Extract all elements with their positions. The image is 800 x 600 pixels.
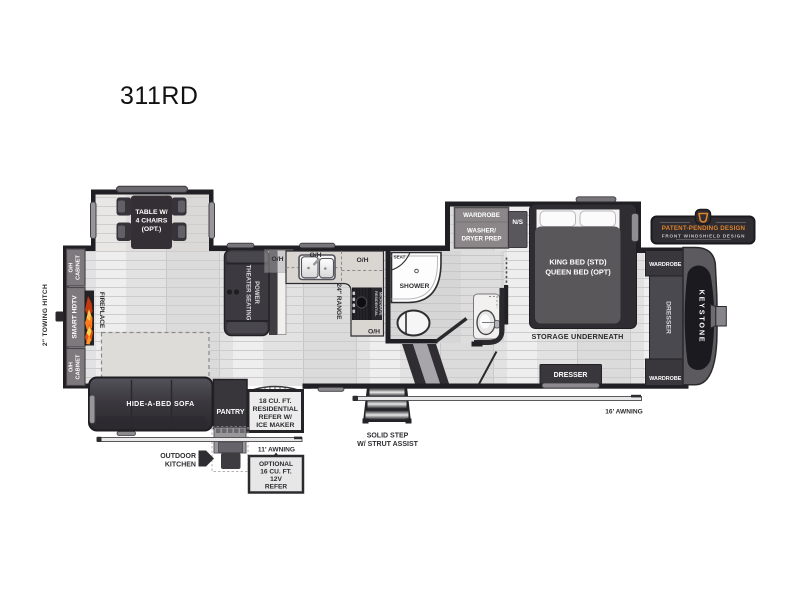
- svg-text:18 CU. FT.: 18 CU. FT.: [259, 398, 292, 405]
- svg-text:SHOWER: SHOWER: [400, 283, 430, 290]
- svg-text:24″ RANGE: 24″ RANGE: [335, 283, 342, 320]
- svg-text:11’ AWNING: 11’ AWNING: [258, 447, 295, 454]
- svg-text:SMART HDTV: SMART HDTV: [72, 295, 79, 339]
- svg-text:ICE MAKER: ICE MAKER: [256, 422, 294, 429]
- svg-text:OUTDOOR: OUTDOOR: [160, 453, 196, 460]
- svg-text:QUEEN BED (OPT): QUEEN BED (OPT): [545, 268, 611, 277]
- svg-text:4 CHAIRS: 4 CHAIRS: [136, 218, 168, 225]
- svg-text:N/S: N/S: [512, 219, 523, 226]
- svg-text:(OPT.): (OPT.): [142, 226, 162, 233]
- svg-text:DRESSER: DRESSER: [665, 301, 672, 334]
- svg-text:THEATER SEATING: THEATER SEATING: [245, 265, 251, 321]
- svg-text:CABINET: CABINET: [76, 354, 82, 379]
- svg-text:REFER: REFER: [265, 484, 288, 491]
- svg-text:WARDROBE: WARDROBE: [649, 376, 681, 382]
- svg-text:RESIDENTIAL: RESIDENTIAL: [374, 291, 378, 317]
- svg-text:RESIDENTIAL: RESIDENTIAL: [253, 406, 298, 413]
- svg-text:SOLID STEP: SOLID STEP: [367, 433, 409, 440]
- svg-text:O/H: O/H: [356, 257, 368, 264]
- svg-text:KEYSTONE: KEYSTONE: [698, 290, 707, 344]
- svg-text:KING BED (STD): KING BED (STD): [549, 258, 607, 267]
- svg-text:16 CU. FT.: 16 CU. FT.: [260, 469, 292, 476]
- svg-text:FRONT WINDSHIELD DESIGN: FRONT WINDSHIELD DESIGN: [662, 234, 745, 239]
- svg-text:O/H: O/H: [69, 362, 75, 372]
- svg-text:311RD: 311RD: [120, 82, 198, 110]
- svg-text:SEAT: SEAT: [394, 255, 406, 260]
- svg-text:PANTRY: PANTRY: [217, 409, 245, 416]
- svg-text:REFER W/: REFER W/: [259, 414, 292, 421]
- svg-text:MICROWAVE: MICROWAVE: [379, 292, 383, 316]
- svg-text:STORAGE UNDERNEATH: STORAGE UNDERNEATH: [531, 332, 623, 341]
- svg-text:WARDROBE: WARDROBE: [649, 262, 681, 268]
- svg-text:W/ STRUT ASSIST: W/ STRUT ASSIST: [357, 441, 419, 448]
- svg-text:HIDE-A-BED SOFA: HIDE-A-BED SOFA: [126, 401, 194, 408]
- svg-text:KITCHEN: KITCHEN: [165, 462, 196, 469]
- svg-text:2″ TOWING HITCH: 2″ TOWING HITCH: [42, 284, 49, 346]
- svg-text:CABINET: CABINET: [76, 254, 82, 279]
- svg-text:O/H: O/H: [271, 256, 283, 263]
- svg-text:OPTIONAL: OPTIONAL: [259, 461, 293, 468]
- svg-text:PATENT-PENDING DESIGN: PATENT-PENDING DESIGN: [662, 225, 746, 232]
- svg-text:POWER: POWER: [253, 281, 259, 304]
- svg-text:WASHER/: WASHER/: [467, 228, 496, 235]
- svg-text:16’ AWNING: 16’ AWNING: [605, 409, 643, 416]
- svg-text:WARDROBE: WARDROBE: [463, 212, 500, 219]
- svg-text:O/H: O/H: [309, 252, 321, 259]
- svg-text:TABLE W/: TABLE W/: [135, 209, 167, 216]
- svg-text:FIREPLACE: FIREPLACE: [98, 292, 105, 329]
- svg-text:12V: 12V: [270, 476, 282, 483]
- svg-text:O/H: O/H: [368, 329, 380, 336]
- svg-text:DRESSER: DRESSER: [554, 372, 588, 379]
- svg-text:DRYER PREP: DRYER PREP: [462, 236, 502, 243]
- svg-text:O/H: O/H: [69, 263, 75, 273]
